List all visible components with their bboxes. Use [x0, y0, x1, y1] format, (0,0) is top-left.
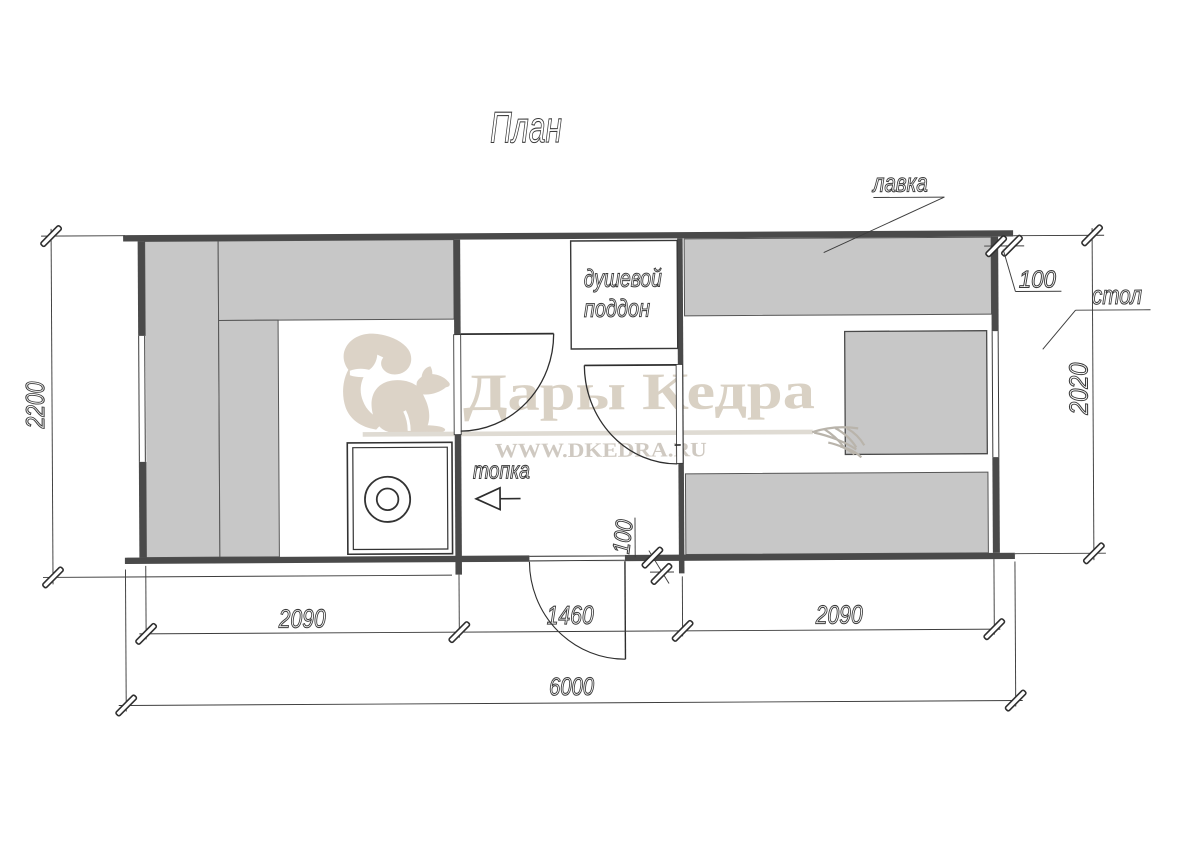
svg-text:100: 100	[1019, 266, 1057, 293]
svg-text:2090: 2090	[278, 603, 326, 633]
svg-text:стол: стол	[1092, 280, 1142, 310]
svg-text:душевой: душевой	[584, 264, 662, 292]
svg-text:100: 100	[608, 518, 639, 555]
svg-text:топка: топка	[473, 457, 530, 484]
svg-text:2200: 2200	[20, 381, 50, 429]
svg-text:поддон: поддон	[584, 295, 650, 323]
svg-text:2090: 2090	[815, 599, 863, 629]
svg-text:1460: 1460	[547, 600, 595, 630]
svg-text:План: План	[490, 103, 562, 152]
svg-text:Дары Кедра: Дары Кедра	[463, 362, 815, 422]
svg-text:6000: 6000	[549, 673, 594, 701]
svg-text:2020: 2020	[1063, 362, 1093, 416]
svg-text:лавка: лавка	[871, 167, 928, 197]
